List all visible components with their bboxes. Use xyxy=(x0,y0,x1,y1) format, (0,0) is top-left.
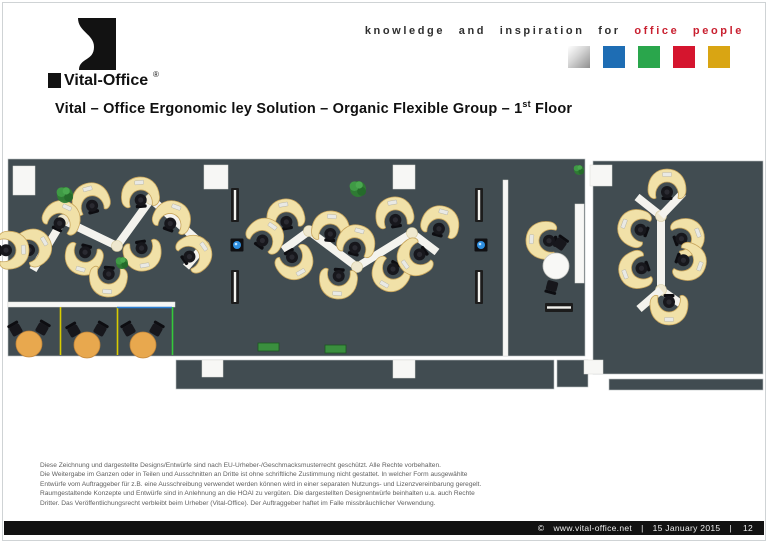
presentation-slide: Vital-Office ® knowledge and inspiration… xyxy=(0,0,768,543)
footer-url: www.vital-office.net xyxy=(553,523,632,533)
desk-monitor xyxy=(663,173,672,177)
partition-node xyxy=(407,228,418,239)
radiator xyxy=(545,303,573,312)
footer-date: 15 January 2015 xyxy=(653,523,721,533)
office-chair xyxy=(661,186,673,200)
desk-monitor xyxy=(21,245,25,254)
footer-page-number: 12 xyxy=(743,523,753,533)
wall-column xyxy=(13,166,35,195)
wall-column xyxy=(8,302,175,307)
desk-monitor xyxy=(333,291,342,296)
floor-service-unit xyxy=(475,239,488,252)
room-floor xyxy=(557,360,588,387)
desk-monitor xyxy=(665,318,674,322)
wall-column xyxy=(202,360,223,377)
radiator xyxy=(475,188,483,222)
meeting-table xyxy=(74,332,100,358)
room-floor xyxy=(176,360,554,389)
room-floor xyxy=(609,379,763,390)
footer-bar: © www.vital-office.net | 15 January 2015… xyxy=(4,521,764,535)
radiator xyxy=(231,188,239,222)
radiator xyxy=(475,270,483,304)
wall-column xyxy=(503,180,508,356)
legal-disclaimer: Diese Zeichnung und dargestellte Designs… xyxy=(40,461,481,508)
legal-line: Entwürfe vom Auftraggeber für z.B. eine … xyxy=(40,480,481,489)
copyright-symbol: © xyxy=(538,523,545,533)
partition-node xyxy=(112,241,123,252)
planter-box xyxy=(258,343,279,351)
meeting-table xyxy=(130,332,156,358)
legal-line: Dritter. Das Veröffentlichungsrecht verb… xyxy=(40,499,481,508)
desk-monitor xyxy=(327,214,336,219)
wall-column xyxy=(575,204,584,283)
wall-column xyxy=(584,360,603,374)
floor-service-unit xyxy=(231,239,244,252)
radiator xyxy=(231,270,239,304)
side-table xyxy=(543,253,569,279)
desk-monitor xyxy=(135,180,144,185)
wall-column xyxy=(590,165,612,186)
wall-column xyxy=(204,165,228,189)
desk-monitor xyxy=(529,235,534,244)
legal-line: Die Weitergabe im Ganzen oder in Teilen … xyxy=(40,470,481,479)
planter-box xyxy=(325,345,346,353)
wall-column xyxy=(393,165,415,189)
footer-separator: | xyxy=(729,523,732,533)
office-chair xyxy=(663,294,675,308)
meeting-table xyxy=(16,331,42,357)
desk-monitor xyxy=(103,289,112,294)
wall-column xyxy=(393,360,415,378)
footer-separator: | xyxy=(641,523,644,533)
legal-line: Diese Zeichnung und dargestellte Designs… xyxy=(40,461,481,470)
legal-line: Raumgestaltende Konzepte und Entwürfe si… xyxy=(40,489,481,498)
